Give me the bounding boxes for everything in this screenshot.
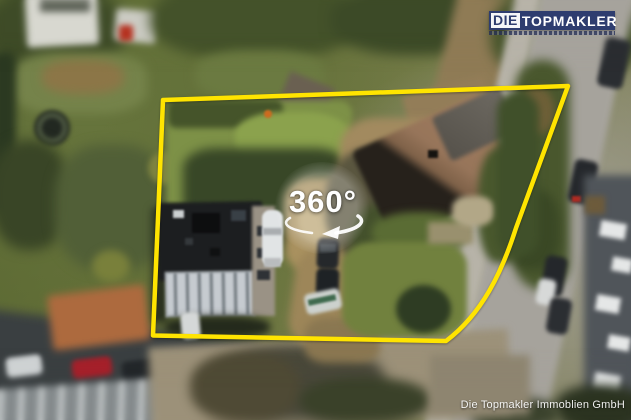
logo-prefix: DIE: [491, 13, 520, 28]
company-logo: DIE TOPMAKLER: [489, 11, 615, 35]
white-car-at-house: [180, 311, 201, 340]
skylight: [231, 210, 246, 221]
yellow-bush-2: [92, 250, 130, 282]
light-path: [452, 196, 494, 226]
barn-chimney: [428, 150, 438, 158]
roof-vent: [210, 248, 220, 256]
hedge-right-inside: [497, 92, 539, 257]
wing-window-3: [257, 270, 270, 280]
solar-panels: [165, 270, 256, 318]
caravan-front: [264, 258, 281, 267]
red-garden-object: [119, 25, 133, 41]
roof-detail-strip: [40, 0, 90, 12]
bush-lower-right: [396, 285, 451, 333]
orange-dot-garden: [264, 110, 272, 118]
logo-tagline-strip: [489, 31, 615, 35]
rotate-arrow-icon: [278, 212, 368, 242]
car-taillight: [572, 196, 581, 202]
brown-roof-right: [585, 196, 605, 214]
tree-bottom-big: [190, 352, 300, 420]
logo-bar: DIE TOPMAKLER: [489, 11, 615, 30]
logo-name: TOPMAKLER: [522, 13, 618, 29]
parked-car-street-5: [545, 296, 573, 335]
roof-vent-2: [185, 238, 193, 245]
tree-bottom-dark: [300, 378, 430, 420]
roof-unit-white: [173, 210, 184, 218]
roof-inset-dark: [192, 213, 220, 233]
badge-360[interactable]: 360°: [268, 160, 378, 255]
aerial-property-photo: 360° DIE TOPMAKLER Die Topmakler Immobli…: [0, 0, 631, 420]
copyright-text: Die Topmakler Immoblien GmbH: [461, 399, 625, 411]
bare-soil-patch: [42, 60, 124, 94]
